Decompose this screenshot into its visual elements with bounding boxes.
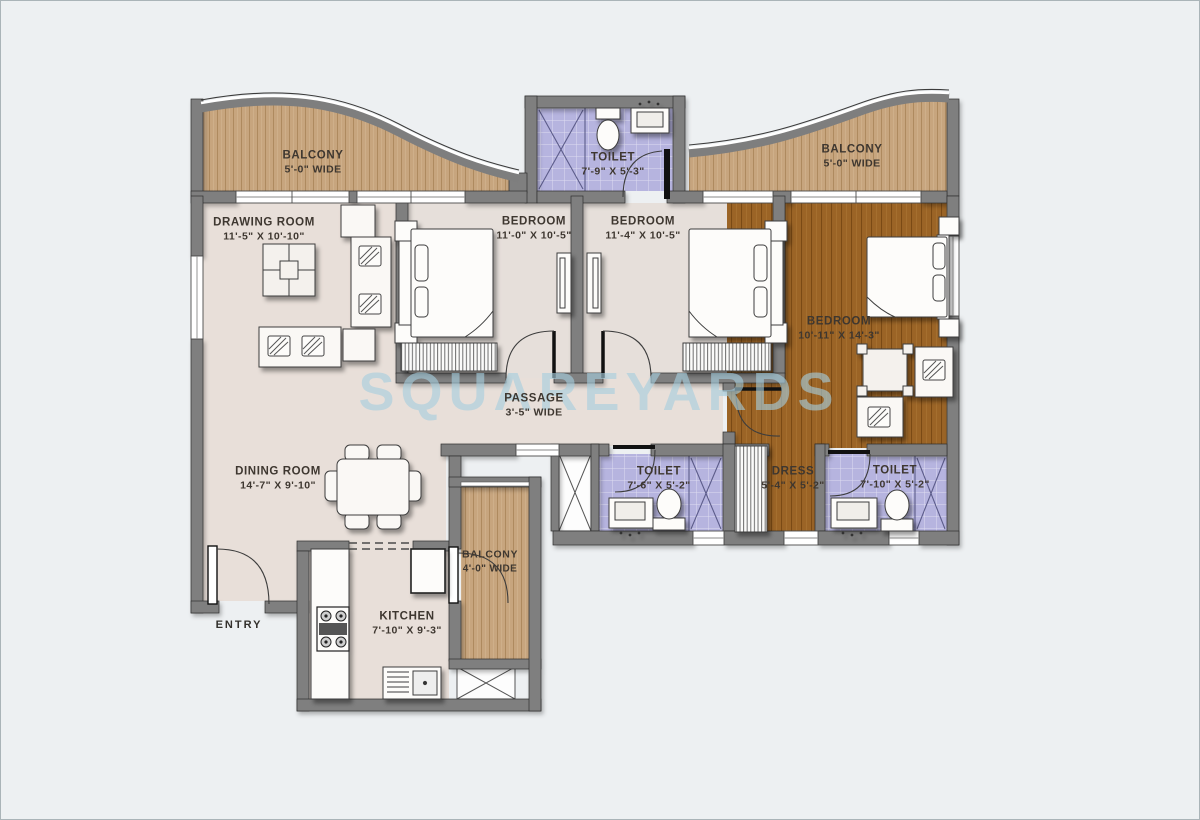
coffee-table (263, 244, 315, 296)
room-label-drawing-room: DRAWING ROOM 11'-5" X 10'-10" (213, 216, 315, 245)
room-dims: 5'-4" X 5'-2" (761, 480, 824, 494)
room-label-toilet-top: TOILET 7'-9" X 5'-3" (581, 151, 644, 180)
room-label-bedroom-1: BEDROOM 11'-0" X 10'-5" (496, 215, 571, 244)
bed-1 (395, 221, 493, 343)
room-dims: 5'-0" WIDE (821, 158, 882, 172)
room-dims: 4'-0" WIDE (462, 562, 518, 575)
room-name: BALCONY (462, 549, 518, 563)
room-name: TOILET (860, 464, 930, 479)
entry-label: ENTRY (216, 619, 263, 631)
window (791, 191, 921, 203)
room-label-balcony-top-right: BALCONY 5'-0" WIDE (821, 143, 882, 172)
room-name: BEDROOM (605, 215, 680, 230)
room-name: DRESS (761, 465, 824, 480)
shaft-box-2 (457, 667, 515, 699)
window (191, 256, 203, 339)
room-name: BEDROOM (496, 215, 571, 230)
room-dims: 3'-5" WIDE (504, 407, 564, 421)
master-table (857, 344, 913, 396)
room-dims: 11'-5" X 10'-10" (213, 231, 315, 245)
room-dims: 7'-9" X 5'-3" (581, 166, 644, 180)
window (236, 191, 349, 203)
room-label-dress: DRESS 5'-4" X 5'-2" (761, 465, 824, 494)
room-name: BALCONY (821, 143, 882, 158)
room-name: DINING ROOM (235, 465, 321, 480)
room-label-balcony-kitchen: BALCONY 4'-0" WIDE (462, 549, 518, 576)
room-label-toilet-mid: TOILET 7'-6" X 5'-2" (627, 465, 690, 494)
room-name: DRAWING ROOM (213, 216, 315, 231)
room-dims: 5'-0" WIDE (282, 164, 343, 178)
room-dims: 14'-7" X 9'-10" (235, 480, 321, 494)
bed-2 (689, 221, 787, 343)
room-dims: 7'-10" X 5'-2" (860, 479, 930, 493)
room-label-kitchen: KITCHEN 7'-10" X 9'-3" (372, 610, 442, 639)
room-dims: 11'-0" X 10'-5" (496, 230, 571, 244)
room-name: KITCHEN (372, 610, 442, 625)
room-label-master-bedroom: BEDROOM 10'-11" X 14'-3" (798, 315, 879, 344)
wc-top (596, 108, 620, 150)
room-dims: 7'-10" X 9'-3" (372, 625, 442, 639)
window (516, 444, 559, 456)
sink-unit (383, 667, 441, 699)
watermark: SQUAREYARDS (358, 361, 839, 423)
window (784, 531, 818, 545)
room-dims: 11'-4" X 10'-5" (605, 230, 680, 244)
window (889, 531, 919, 545)
floor-plan: SQUAREYARDS BALCONY 5'-0" WIDE TOILET 7'… (0, 0, 1200, 820)
room-name: PASSAGE (504, 392, 564, 407)
room-label-toilet-right: TOILET 7'-10" X 5'-2" (860, 464, 930, 493)
room-label-bedroom-2: BEDROOM 11'-4" X 10'-5" (605, 215, 680, 244)
room-label-dining-room: DINING ROOM 14'-7" X 9'-10" (235, 465, 321, 494)
room-label-balcony-top-left: BALCONY 5'-0" WIDE (282, 149, 343, 178)
window (693, 531, 724, 545)
room-label-passage: PASSAGE 3'-5" WIDE (504, 392, 564, 421)
fridge (411, 549, 445, 593)
shaft-box-1 (559, 454, 591, 531)
stove (317, 607, 349, 651)
window (703, 191, 773, 203)
window (357, 191, 465, 203)
room-dims: 10'-11" X 14'-3" (798, 330, 879, 344)
room-dims: 7'-6" X 5'-2" (627, 480, 690, 494)
room-name: TOILET (581, 151, 644, 166)
room-name: TOILET (627, 465, 690, 480)
room-name: BALCONY (282, 149, 343, 164)
room-name: BEDROOM (798, 315, 879, 330)
